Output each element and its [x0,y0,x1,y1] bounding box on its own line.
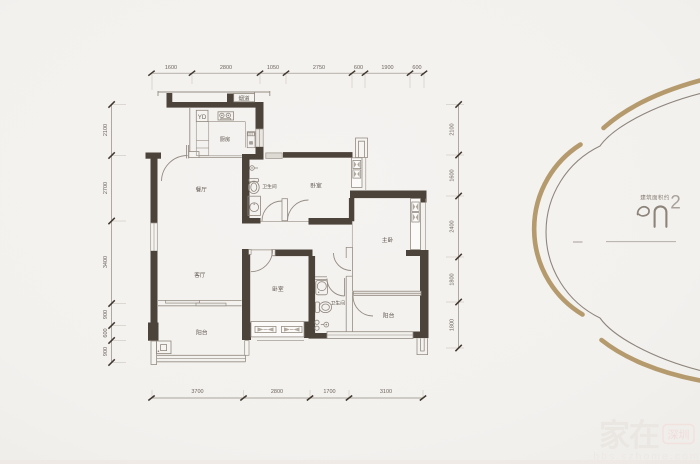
svg-text:3400: 3400 [103,256,109,268]
svg-text:2800: 2800 [220,65,232,71]
svg-text:阳台: 阳台 [196,329,208,337]
svg-text:2100: 2100 [450,123,456,135]
svg-text:2700: 2700 [103,182,109,194]
svg-text:2: 2 [670,193,681,214]
svg-text:bbs.szhome.com: bbs.szhome.com [593,451,700,463]
svg-text:2400: 2400 [450,220,456,232]
svg-text:厨房: 厨房 [220,135,230,143]
svg-text:客厅: 客厅 [194,271,206,279]
svg-text:深圳: 深圳 [668,429,690,442]
svg-text:1800: 1800 [450,319,456,331]
svg-text:1600: 1600 [450,169,456,181]
svg-text:卧室: 卧室 [272,285,284,293]
svg-text:600: 600 [354,65,363,71]
svg-text:1700: 1700 [323,389,335,395]
svg-text:2100: 2100 [103,124,109,136]
svg-text:3100: 3100 [380,389,392,395]
svg-text:建筑面积约: 建筑面积约 [640,194,670,202]
svg-text:1900: 1900 [381,65,393,71]
svg-text:1600: 1600 [165,65,177,71]
svg-text:2750: 2750 [313,65,325,71]
svg-text:卫生间: 卫生间 [331,299,346,306]
svg-text:卧室: 卧室 [310,182,322,190]
svg-text:家在: 家在 [599,418,659,453]
svg-text:3700: 3700 [191,389,203,395]
svg-text:阳台: 阳台 [383,312,395,320]
svg-text:2800: 2800 [271,389,283,395]
svg-text:1050: 1050 [267,65,279,71]
svg-text:900: 900 [103,310,109,319]
svg-text:卫生间: 卫生间 [262,183,277,190]
svg-text:600: 600 [412,65,421,71]
svg-text:YD: YD [198,114,207,121]
svg-text:600: 600 [103,328,109,337]
svg-text:900: 900 [103,347,109,356]
svg-text:主卧: 主卧 [382,236,394,244]
svg-text:餐厅: 餐厅 [196,185,208,193]
svg-text:烟道: 烟道 [238,94,250,102]
svg-text:1800: 1800 [450,273,456,285]
